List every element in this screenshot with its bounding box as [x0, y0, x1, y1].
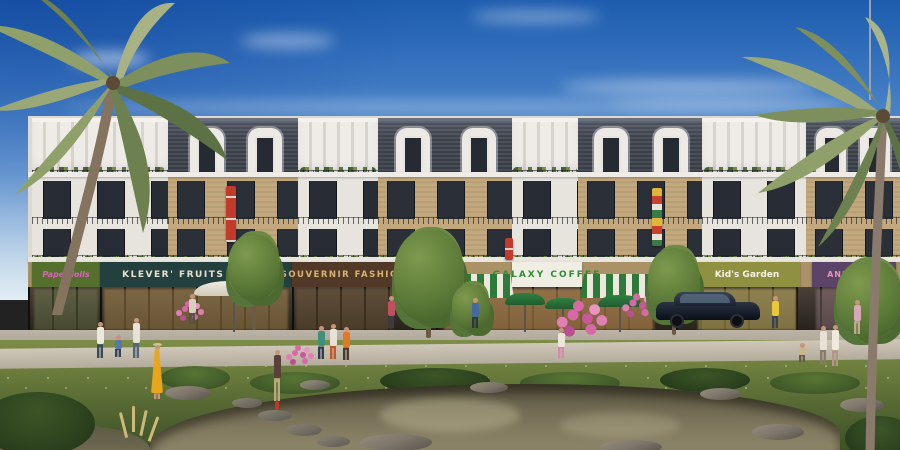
pedestrian: [95, 322, 105, 358]
rock: [470, 382, 508, 393]
shophouse-unit: [578, 118, 702, 262]
child-pedestrian: [113, 335, 123, 357]
shopper: [386, 296, 396, 328]
mansard-roof: [578, 118, 702, 176]
railing: [298, 217, 378, 224]
third-floor-windows: [578, 176, 702, 224]
rock: [300, 380, 330, 390]
shophouse-unit: [298, 118, 378, 262]
pink-flower-cluster: [568, 310, 579, 321]
rock: [165, 386, 211, 400]
shophouse-unit: [512, 118, 578, 262]
storefront-sign-souvenir-fashion: SOUVERNIR FASHION: [292, 262, 396, 287]
pedestrian: [556, 328, 566, 358]
third-floor-windows: [298, 176, 378, 224]
car-wheel: [670, 314, 684, 328]
water-reflection: [380, 398, 520, 432]
sign-text: SOUVERNIR FASHION: [281, 270, 408, 280]
green-umbrella: [545, 298, 581, 309]
stepping-stone: [232, 398, 262, 408]
pedestrian: [328, 324, 338, 359]
stepping-stone: [258, 410, 292, 421]
roof-terrace: [512, 118, 578, 176]
rock: [600, 440, 662, 450]
third-floor-windows: [378, 176, 512, 224]
rock: [360, 434, 432, 450]
vertical-banner-sign: [505, 238, 513, 260]
pink-flower-cluster: [629, 299, 636, 306]
red-backpack: [275, 401, 279, 410]
water-reflection: [560, 412, 680, 438]
pedestrian: [131, 318, 141, 358]
vertical-banner-sign: [652, 188, 662, 246]
cloud: [470, 10, 600, 23]
pink-flower-cluster: [292, 350, 298, 356]
photographer: [272, 350, 282, 410]
pedestrian: [316, 326, 326, 359]
storefront-sign-galaxy-coffee: GALAXY COFFEE: [512, 262, 582, 287]
palm-tree-right: [700, 15, 900, 450]
shopper: [470, 298, 480, 328]
stepping-stone: [286, 424, 322, 436]
railing: [512, 217, 578, 224]
woman-in-yellow-dress: [152, 343, 162, 399]
stepping-stone: [316, 436, 350, 447]
railing: [578, 217, 702, 224]
pedestrian: [341, 327, 351, 360]
scene: Paperdolls KLEVER' FRUITS STORE SOUVERNI…: [0, 0, 900, 450]
railing: [378, 217, 512, 224]
shop-interior-glow: [296, 289, 392, 330]
palm-tree-left: [0, 0, 265, 315]
third-floor-windows: [512, 176, 578, 224]
mansard-roof: [378, 118, 512, 176]
green-umbrella: [505, 293, 545, 305]
ornamental-grass: [132, 406, 135, 432]
roof-terrace: [298, 118, 378, 176]
